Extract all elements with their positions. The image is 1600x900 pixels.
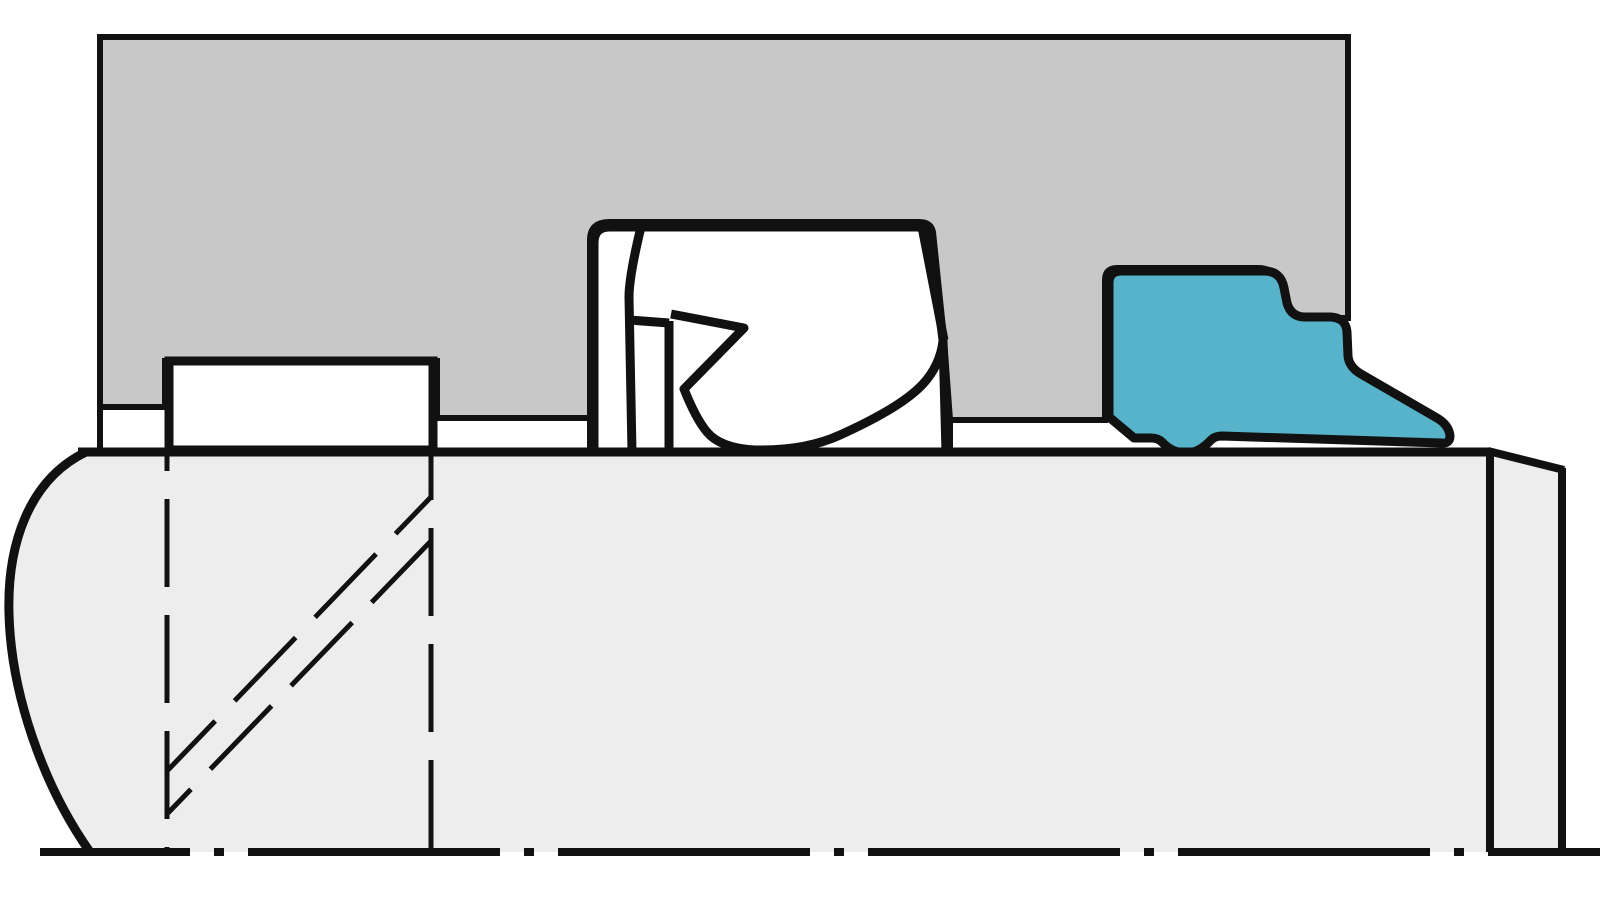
rod-body — [10, 452, 1562, 852]
wiper-seal — [1109, 271, 1450, 453]
rod-seal-body — [594, 227, 946, 452]
guide-ring — [169, 361, 433, 450]
diagram-canvas — [0, 0, 1600, 900]
sealing-system-drawing — [0, 0, 1600, 900]
rod-seal-connector-line — [629, 320, 669, 323]
